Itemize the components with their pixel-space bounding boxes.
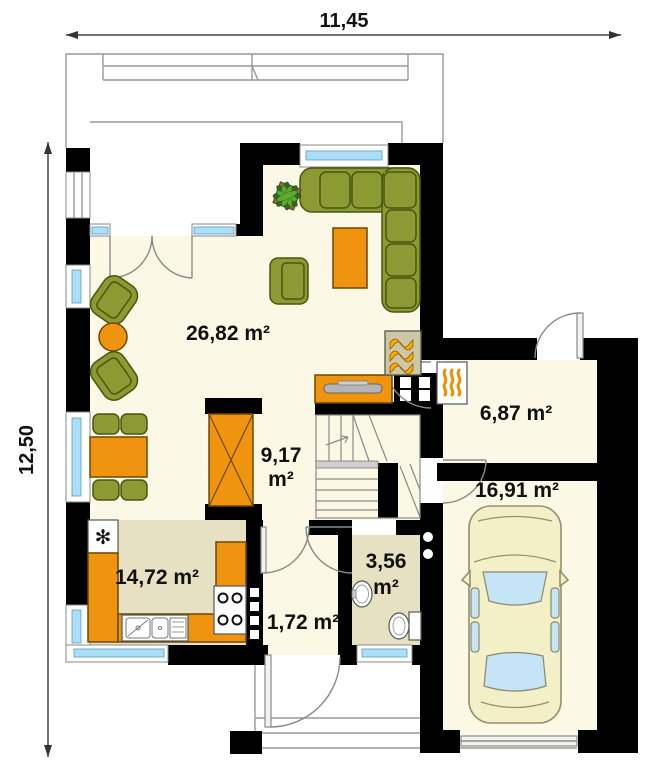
dining-chair — [93, 414, 119, 434]
dining-chair — [93, 480, 119, 500]
armchair — [270, 258, 308, 304]
car — [462, 506, 568, 723]
window-north-living — [300, 145, 388, 167]
sink-icon — [122, 615, 188, 641]
washbasin-icon — [352, 581, 372, 607]
terrace-glass-wall — [90, 224, 236, 236]
snowflake-icon: ✻ — [95, 525, 112, 549]
dining-set — [90, 414, 147, 500]
vestibule-area-label: 1,72 m² — [267, 611, 339, 634]
tv-cabinet — [315, 375, 392, 403]
garage-area-label: 16,91 m² — [475, 479, 559, 502]
window-bathroom — [357, 645, 412, 662]
window-west-dining — [66, 412, 90, 502]
side-table-round — [99, 323, 127, 351]
width-dimension-label: 11,45 — [320, 10, 369, 32]
vestibule-floor — [263, 520, 338, 655]
kitchen-area-label: 14,72 m² — [115, 566, 199, 589]
floor-plan: ✻ — [0, 0, 650, 768]
dimension-top: 11,45 — [66, 10, 621, 39]
hall-area-value: 9,17 — [261, 444, 302, 467]
dining-table — [90, 437, 147, 477]
fireplace-icon — [385, 331, 421, 375]
dining-chair — [121, 414, 147, 434]
window-west-living — [66, 265, 90, 308]
height-dimension-label: 12,50 — [16, 425, 38, 475]
vent-icon — [423, 549, 433, 559]
bathroom-area-unit: m² — [373, 576, 399, 599]
wardrobe — [209, 414, 253, 506]
hall-area-unit: m² — [268, 468, 294, 491]
boiler-area-label: 6,87 m² — [480, 402, 552, 425]
terrace-outline — [66, 54, 443, 148]
boiler-exterior-door — [535, 313, 583, 358]
living-area-label: 26,82 m² — [186, 322, 270, 345]
plant-icon — [273, 182, 301, 210]
windshield — [483, 572, 547, 605]
dining-chair — [121, 480, 147, 500]
porch-pier — [230, 731, 262, 754]
coffee-table — [333, 228, 367, 288]
window-west-terrace — [66, 172, 90, 218]
boiler-icon — [437, 362, 467, 404]
vent-icon — [423, 532, 433, 542]
entrance-door — [265, 655, 340, 727]
bathroom-area-value: 3,56 — [366, 550, 407, 573]
garage-exterior-door — [461, 736, 577, 746]
toilet-icon — [389, 612, 421, 640]
stove-icon — [214, 586, 246, 634]
rear-window — [484, 653, 546, 692]
counter-left — [88, 553, 118, 642]
dimension-left: 12,50 — [16, 142, 52, 757]
